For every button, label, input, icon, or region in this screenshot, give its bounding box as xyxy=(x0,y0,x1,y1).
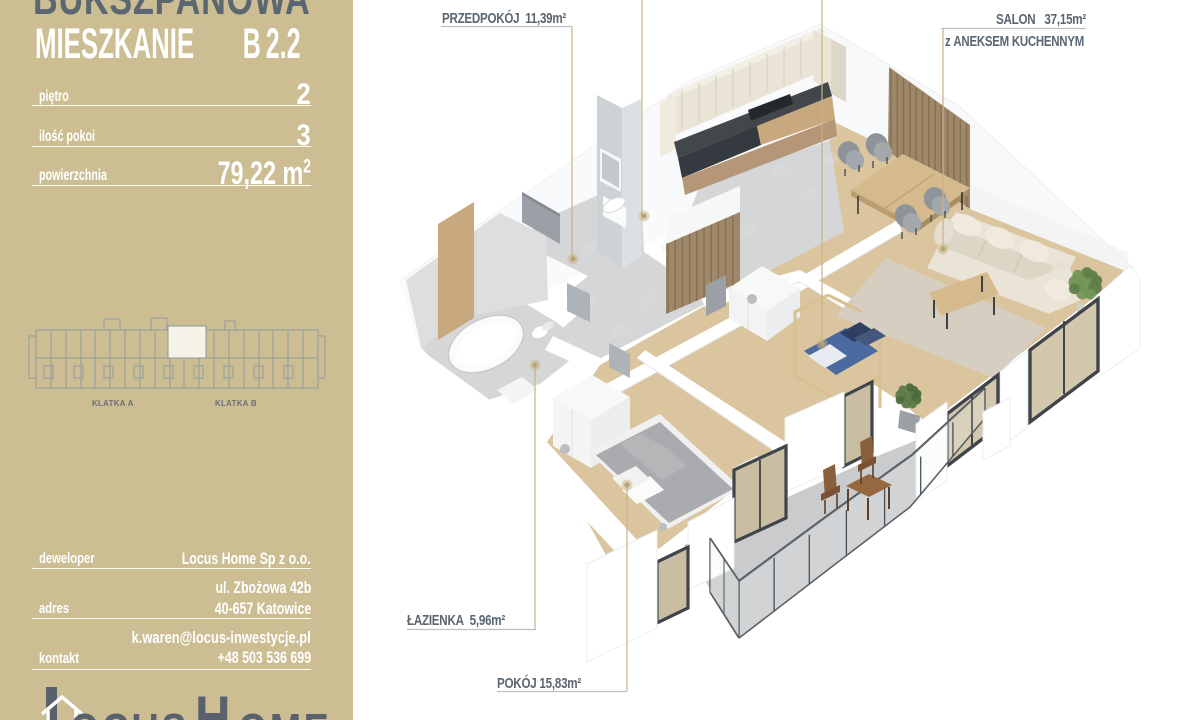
svg-text:SALON 37,15m²: SALON 37,15m² xyxy=(996,12,1086,28)
svg-text:ŁAZIENKA 5,96m²: ŁAZIENKA 5,96m² xyxy=(407,613,505,629)
svg-text:POKÓJ 15,83m²: POKÓJ 15,83m² xyxy=(497,674,581,692)
svg-text:z ANEKSEM KUCHENNYM: z ANEKSEM KUCHENNYM xyxy=(945,34,1084,50)
svg-text:PRZEDPOKÓJ 11,39m²: PRZEDPOKÓJ 11,39m² xyxy=(442,9,566,27)
